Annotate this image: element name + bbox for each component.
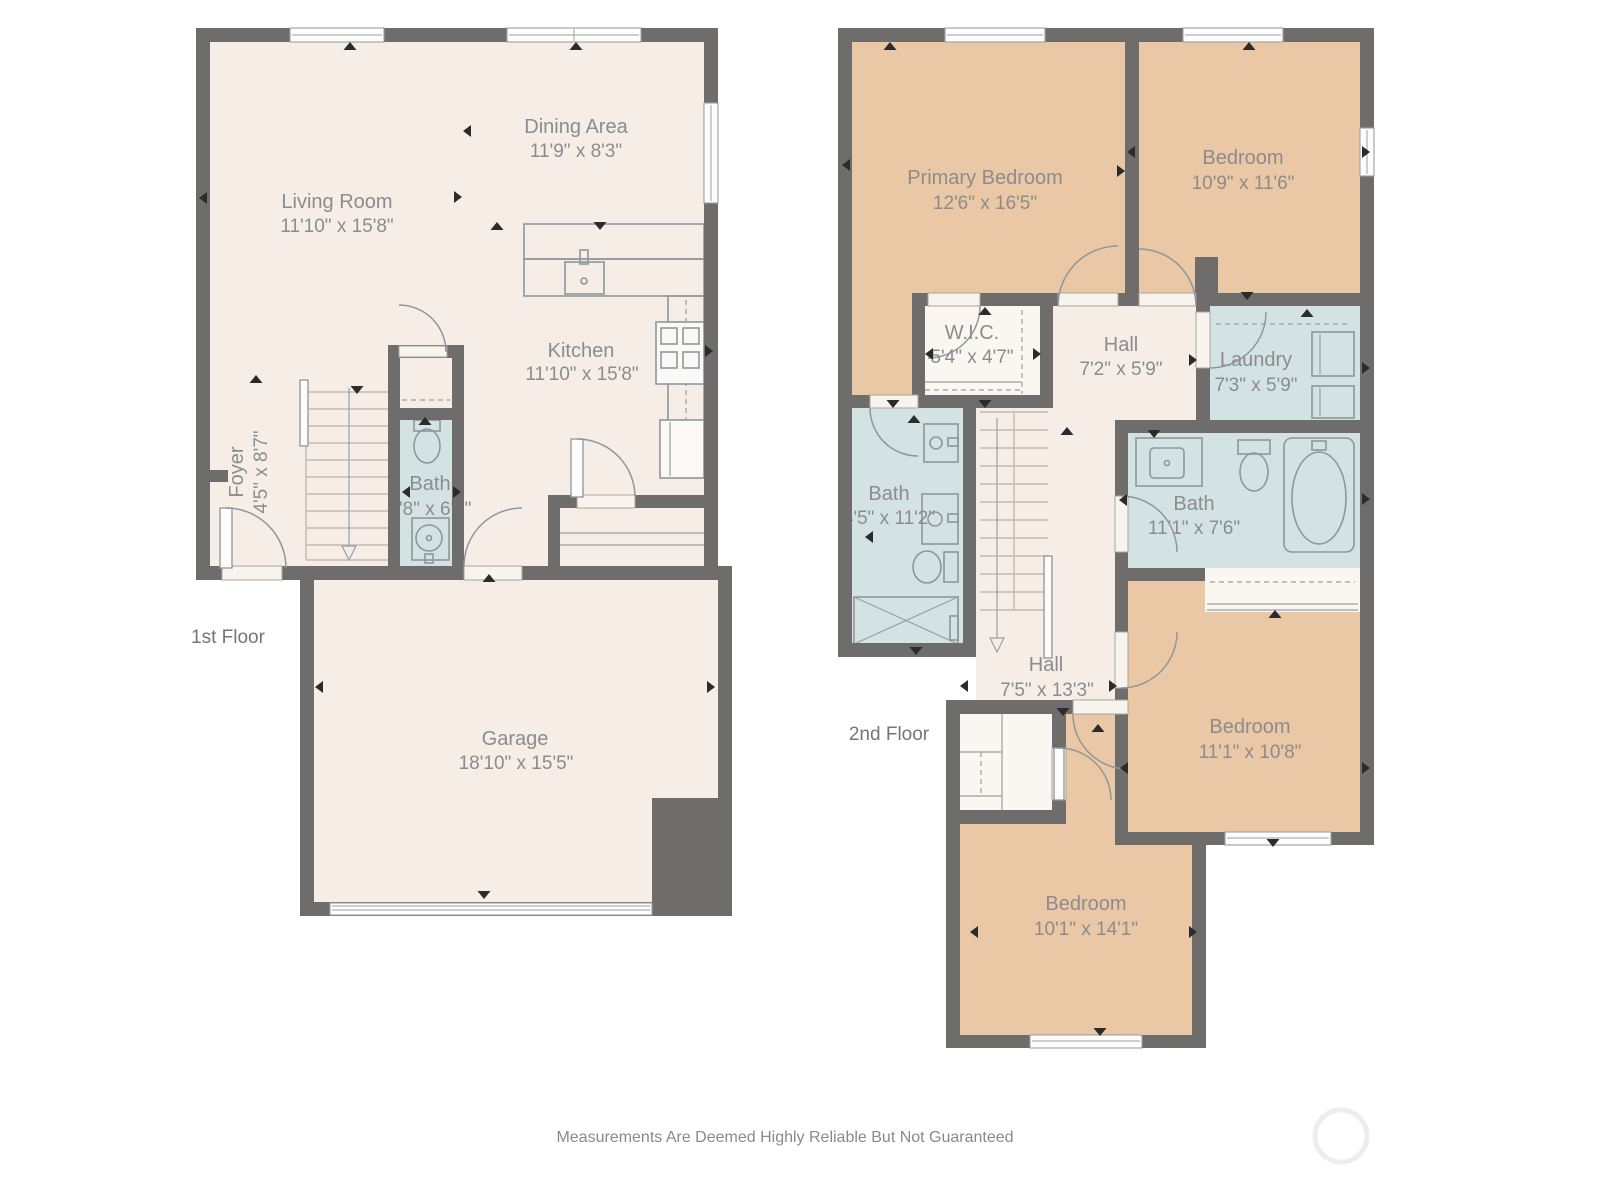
first-floor-plan: Living Room 11'10" x 15'8" Dining Area 1… xyxy=(196,28,732,916)
second-floor-label: 2nd Floor xyxy=(849,724,930,745)
kitchen-label: Kitchen xyxy=(548,340,615,362)
closet-door-opening xyxy=(399,346,447,357)
bath-left-label: Bath xyxy=(868,483,909,505)
vestibule-fill xyxy=(1066,714,1115,824)
hall-upper-label: Hall xyxy=(1104,334,1138,356)
bedroom-bottom-dims: 10'1" x 14'1" xyxy=(1034,919,1138,940)
dining-area-label: Dining Area xyxy=(524,116,628,138)
primary-hall-fill xyxy=(852,293,912,408)
garage-door-opening xyxy=(464,566,522,580)
garage-door-panel xyxy=(330,903,652,915)
living-room-label: Living Room xyxy=(281,191,392,213)
garage-label: Garage xyxy=(482,728,549,750)
primary-bedroom-label: Primary Bedroom xyxy=(907,167,1063,189)
bedroom-right-fill xyxy=(1128,581,1360,832)
foyer-label: Foyer xyxy=(226,446,248,497)
logo-watermark xyxy=(1315,1110,1367,1162)
kitchen-door-leaf xyxy=(571,439,583,497)
primary-bedroom-dims: 12'6" x 16'5" xyxy=(933,193,1037,214)
bedroom-bottom-label: Bedroom xyxy=(1045,893,1126,915)
foyer-dims: 4'5" x 8'7" xyxy=(251,430,272,513)
first-floor-label: 1st Floor xyxy=(191,627,266,648)
bath-1f-label: Bath xyxy=(409,473,450,495)
bath-right-label: Bath xyxy=(1173,493,1214,515)
kitchen-dims: 11'10" x 15'8" xyxy=(525,364,638,385)
vestibule-door-opening xyxy=(1073,700,1128,714)
fridge-icon xyxy=(660,420,704,478)
stove-icon xyxy=(656,322,704,384)
floor-plan-svg: Living Room 11'10" x 15'8" Dining Area 1… xyxy=(0,0,1600,1200)
bedroom-right-label: Bedroom xyxy=(1209,716,1290,738)
bath-right-dims: 11'1" x 7'6" xyxy=(1148,518,1240,539)
laundry-door-opening xyxy=(1196,312,1210,368)
disclaimer-text: Measurements Are Deemed Highly Reliable … xyxy=(556,1129,1013,1146)
kitchen-door-opening xyxy=(577,495,635,508)
bedroom-tr-dims: 10'9" x 11'6" xyxy=(1192,173,1295,194)
hall-lower-dims: 7'5" x 13'3" xyxy=(1000,680,1094,701)
hall-upper-dims: 7'2" x 5'9" xyxy=(1079,359,1162,380)
bedroom-right-door-opening xyxy=(1115,632,1128,688)
front-door-leaf xyxy=(220,508,232,568)
wic-dims: 5'4" x 4'7" xyxy=(930,347,1013,368)
floor-plan-page: Living Room 11'10" x 15'8" Dining Area 1… xyxy=(0,0,1600,1200)
laundry-dims: 7'3" x 5'9" xyxy=(1214,375,1297,396)
second-floor-plan: Primary Bedroom 12'6" x 16'5" Bedroom 10… xyxy=(838,28,1374,1048)
laundry-label: Laundry xyxy=(1220,349,1292,371)
bedroom-tr-label: Bedroom xyxy=(1202,147,1283,169)
dining-area-dims: 11'9" x 8'3" xyxy=(530,141,622,162)
hall-lower-label: Hall xyxy=(1029,654,1063,676)
wic-door-opening xyxy=(928,293,980,306)
bath-left-dims: 4'5" x 11'2" xyxy=(843,508,935,529)
bedroom-tr-door-opening xyxy=(1139,293,1196,306)
bedroom-right-dims: 11'1" x 10'8" xyxy=(1199,742,1302,763)
closet-2f-door-leaf xyxy=(1054,748,1064,800)
bedroom-right-closet-fill xyxy=(1205,568,1360,612)
garage-dims: 18'10" x 15'5" xyxy=(459,753,574,774)
primary-door-opening xyxy=(1058,293,1118,306)
living-room-dims: 11'10" x 15'8" xyxy=(280,216,393,237)
